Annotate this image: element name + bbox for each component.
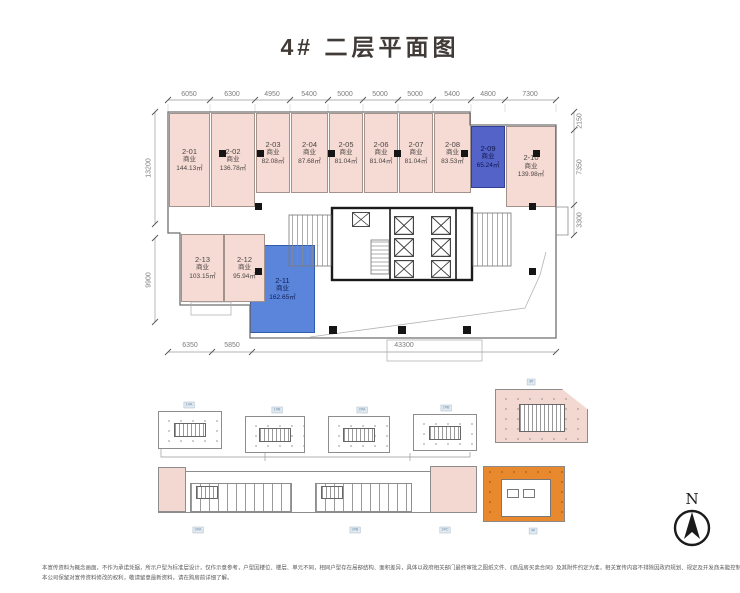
- strip-core-b: [321, 486, 343, 499]
- strip-pink-left: [158, 467, 186, 512]
- dim-right-3300: 3300: [577, 212, 584, 228]
- dim-top-4800: 4800: [480, 91, 496, 98]
- orange-core-elev-1: [507, 489, 519, 498]
- strip-label-c: 3#C: [439, 527, 450, 534]
- dim-top-7300: 7300: [522, 91, 538, 98]
- north-letter: N: [668, 492, 716, 506]
- unit-2-12[interactable]: 2-12商业95.94㎡: [224, 234, 265, 302]
- dim-bottom-5850: 5850: [224, 342, 240, 349]
- side-thumb-pink-core: [519, 404, 565, 432]
- dim-top-5000c: 5000: [407, 91, 423, 98]
- side-thumb-orange-label: 4#: [529, 528, 537, 535]
- keyplan-thumb-3[interactable]: [328, 416, 390, 453]
- dim-right-7350: 7350: [577, 159, 584, 175]
- unit-2-09-highlighted[interactable]: 2-09商业65.24㎡: [471, 126, 505, 188]
- disclaimer-line-2: 本公司保留对宣传资料修改的权利，敬请留意最新资料，请在购房前详细了解。: [42, 574, 698, 581]
- unit-2-08[interactable]: 2-08商业83.53㎡: [434, 113, 471, 193]
- dim-left-9900: 9900: [146, 272, 153, 288]
- page-title: 4# 二层平面图: [0, 28, 740, 62]
- dim-bottom-43300: 43300: [394, 342, 413, 349]
- strip-pink-right: [430, 466, 477, 513]
- keyplan-label-3: 2#A: [357, 407, 368, 414]
- dim-left-13200: 13200: [146, 158, 153, 177]
- unit-2-07[interactable]: 2-07商业81.04㎡: [399, 113, 433, 193]
- dim-top-4950: 4950: [264, 91, 280, 98]
- strip-core-a: [196, 486, 218, 499]
- thumb-core: [259, 428, 291, 442]
- north-arrow: N: [668, 492, 716, 555]
- dim-top-6300: 6300: [224, 91, 240, 98]
- unit-2-02[interactable]: 2-02商业136.78㎡: [211, 113, 255, 207]
- keyplan-thumb-1[interactable]: [158, 411, 222, 449]
- thumb-core: [429, 426, 461, 440]
- dim-right-2150: 2150: [577, 113, 584, 129]
- unit-2-13[interactable]: 2-13商业103.15㎡: [181, 234, 224, 302]
- side-thumb-orange-current[interactable]: [483, 466, 565, 522]
- unit-2-04[interactable]: 2-04商业87.68㎡: [291, 113, 328, 193]
- side-thumb-orange-core: [501, 479, 551, 517]
- compass-icon: [670, 506, 714, 550]
- dim-top-5000b: 5000: [372, 91, 388, 98]
- keyplan-thumb-2[interactable]: [245, 416, 305, 453]
- thumb-core: [174, 423, 206, 437]
- unit-2-10[interactable]: 2-10商业139.98㎡: [506, 126, 556, 207]
- thumb-core: [343, 428, 375, 442]
- keyplan-label-1: 1#A: [184, 402, 195, 409]
- unit-2-03[interactable]: 2-03商业82.08㎡: [256, 113, 290, 193]
- dim-top-5400b: 5400: [444, 91, 460, 98]
- dim-top-6050: 6050: [181, 91, 197, 98]
- dim-top-5400a: 5400: [301, 91, 317, 98]
- disclaimer-line-1: 本宣传资料为概念画面，不作为承诺凭据，所示户型为标准层设计，仅作示意参考，户型因…: [42, 564, 698, 571]
- side-thumb-pink-label: 3#: [527, 379, 535, 386]
- dim-top-5000a: 5000: [337, 91, 353, 98]
- dim-bottom-6350: 6350: [182, 342, 198, 349]
- strip-label-a: 3#A: [193, 527, 204, 534]
- keyplan-label-4: 2#B: [441, 405, 452, 412]
- strip-label-b: 3#B: [350, 527, 361, 534]
- keyplan-thumb-4[interactable]: [413, 414, 477, 451]
- side-thumb-pink[interactable]: [495, 389, 588, 443]
- unit-2-06[interactable]: 2-06商业81.04㎡: [364, 113, 398, 193]
- keyplan-label-2: 1#B: [272, 407, 283, 414]
- orange-core-elev-2: [523, 489, 535, 498]
- unit-2-05[interactable]: 2-05商业81.04㎡: [329, 113, 363, 193]
- unit-2-01[interactable]: 2-01商业144.13㎡: [169, 113, 210, 207]
